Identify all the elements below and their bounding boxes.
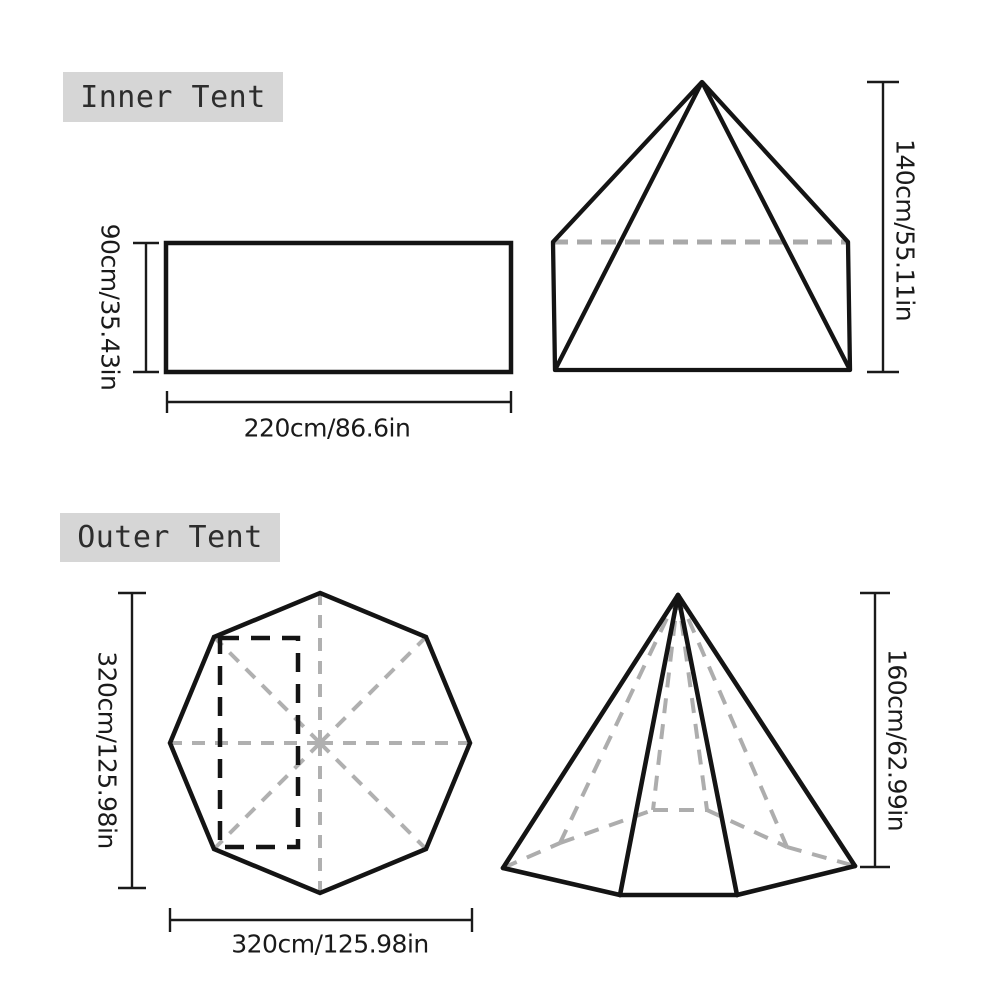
outer-side-height-label: 160cm/62.99in — [883, 649, 912, 831]
inner-floor-depth-label: 90cm/35.43in — [96, 224, 125, 391]
outer-side-back-edges-dashed — [503, 595, 855, 868]
outer-tent-title: Outer Tent — [60, 513, 280, 562]
outer-floor-horizontal-dimline — [170, 908, 472, 932]
inner-floor-rect — [166, 243, 511, 372]
outer-side-front-edges — [503, 595, 855, 895]
inner-floor-width-dimline — [167, 391, 511, 413]
tent-dimensions-diagram: Inner Tent Outer Tent 90cm/35.43in 220cm… — [0, 0, 1000, 1000]
inner-floor-depth-dimline — [133, 243, 159, 372]
inner-side-outline — [553, 82, 850, 370]
inner-side-height-label: 140cm/55.11in — [891, 139, 920, 321]
outer-floor-vertical-dimline — [118, 593, 146, 888]
inner-tent-title: Inner Tent — [63, 72, 283, 122]
inner-side-right-ridge-line — [702, 82, 850, 370]
inner-floor-width-label: 220cm/86.6in — [244, 414, 411, 443]
outer-floor-diameter-horizontal-label: 320cm/125.98in — [231, 930, 429, 959]
outer-floor-diameter-vertical-label: 320cm/125.98in — [93, 651, 122, 849]
tent-line-drawing — [0, 0, 1000, 1000]
inner-side-left-ridge-line — [555, 82, 702, 370]
